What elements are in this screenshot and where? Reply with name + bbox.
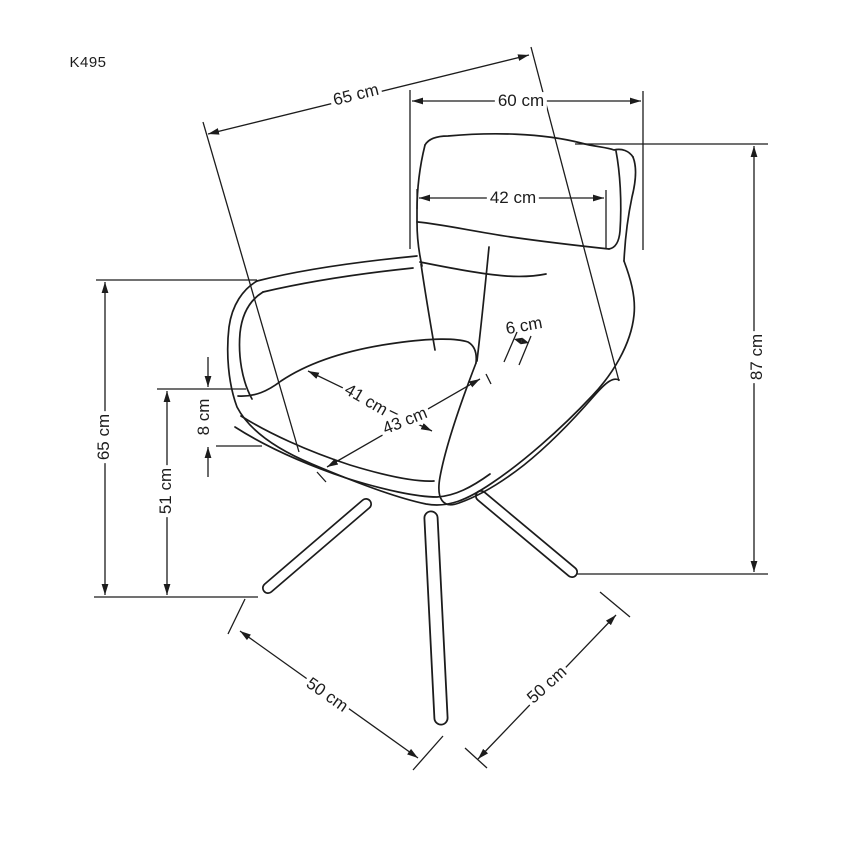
backrest-seam — [420, 262, 546, 276]
backrest-right-edge — [624, 157, 636, 261]
dim-label-seatedge: 8 cm — [195, 396, 213, 439]
chair-dimension-diagram: K495 65 cm 60 cm 42 cm 6 cm 41 cm 43 cm … — [0, 0, 868, 868]
armrest-corner-inner — [240, 292, 264, 399]
headrest-right-edge — [609, 151, 621, 249]
dim-label-headrest: 42 cm — [487, 189, 539, 207]
chair-outline — [228, 134, 636, 505]
seat-bowl-inner — [439, 363, 619, 505]
tick-seatdepth-left — [317, 472, 326, 482]
dim-label-width: 60 cm — [495, 92, 547, 110]
dim-label-seatheight: 51 cm — [157, 465, 175, 517]
dim-label-height: 87 cm — [748, 331, 766, 383]
dim-arrows-armthickness — [514, 338, 529, 345]
diagram-drawing — [0, 0, 868, 868]
tick-seatdepth-right — [486, 374, 491, 384]
dim-label-armheight: 65 cm — [95, 411, 113, 463]
shell-piping-lower — [235, 427, 490, 497]
armrest-rim-inner — [263, 268, 413, 292]
backrest-left-edge — [417, 222, 422, 266]
tick-base-left-inner — [413, 736, 443, 770]
headrest-top-edge — [425, 134, 633, 157]
tick-base-left-outer — [228, 599, 245, 634]
backrest-seam-right — [477, 247, 489, 361]
headrest-left-edge — [417, 145, 425, 222]
tick-base-right-inner — [465, 748, 487, 768]
tick-base-right-outer — [600, 592, 630, 617]
model-label: K495 — [66, 55, 109, 71]
backrest-seam-left — [421, 264, 435, 350]
shell-outline — [228, 261, 635, 505]
